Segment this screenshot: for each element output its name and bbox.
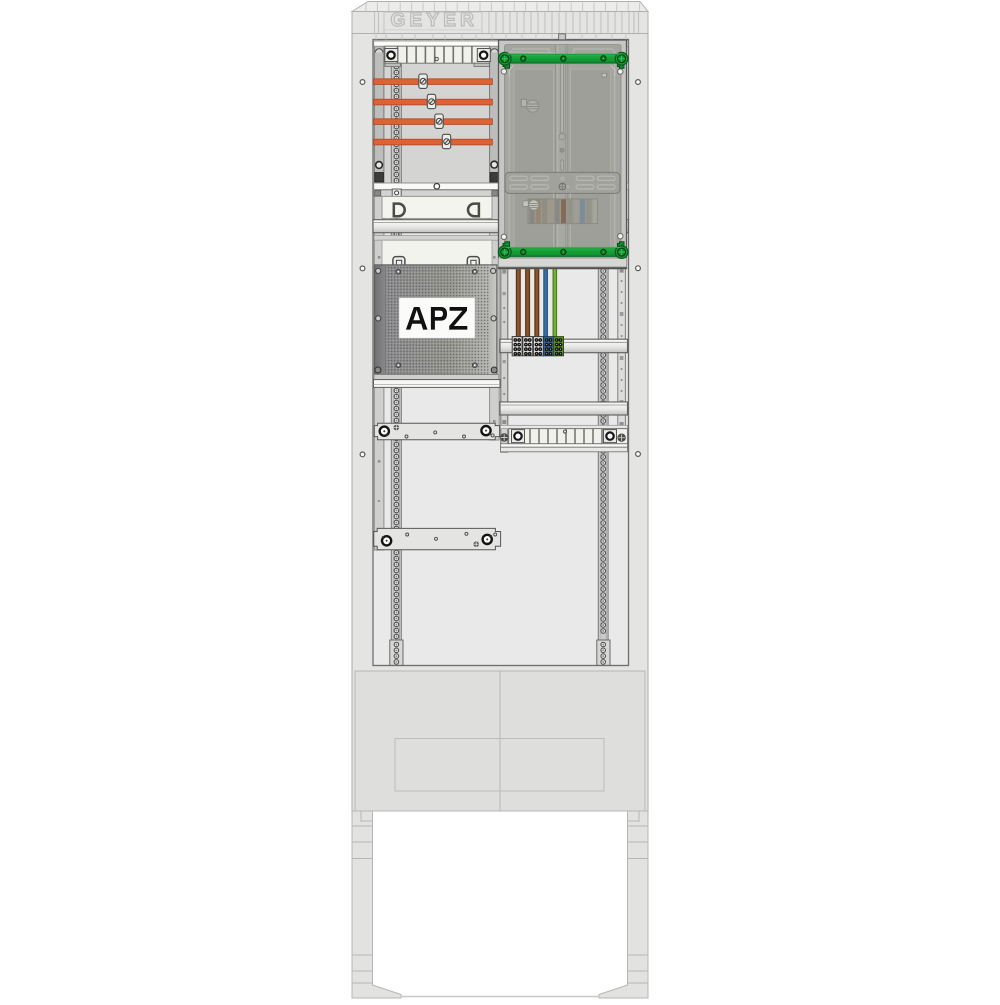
svg-text:GEYER: GEYER	[391, 10, 479, 31]
